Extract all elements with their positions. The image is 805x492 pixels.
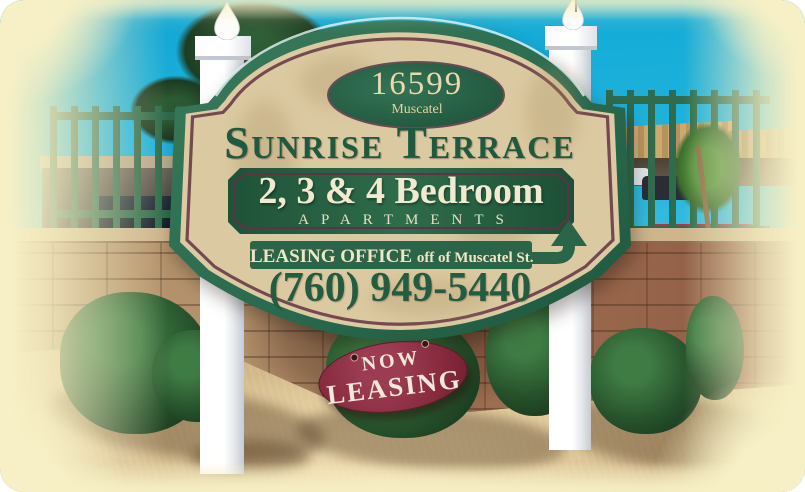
address-number: 16599 xyxy=(332,66,502,103)
phone-number: (760) 949-5440 xyxy=(220,264,580,312)
sign-title: Sunrise Terrace xyxy=(185,117,615,169)
address-street: Muscatel xyxy=(332,102,502,118)
scene: 16599 Muscatel Sunrise Terrace 2, 3 & 4 … xyxy=(0,0,805,492)
photo-frame: 16599 Muscatel Sunrise Terrace 2, 3 & 4 … xyxy=(0,0,805,492)
apartments-label: APARTMENTS xyxy=(236,212,578,229)
bedrooms-line: 2, 3 & 4 Bedroom xyxy=(230,169,572,213)
